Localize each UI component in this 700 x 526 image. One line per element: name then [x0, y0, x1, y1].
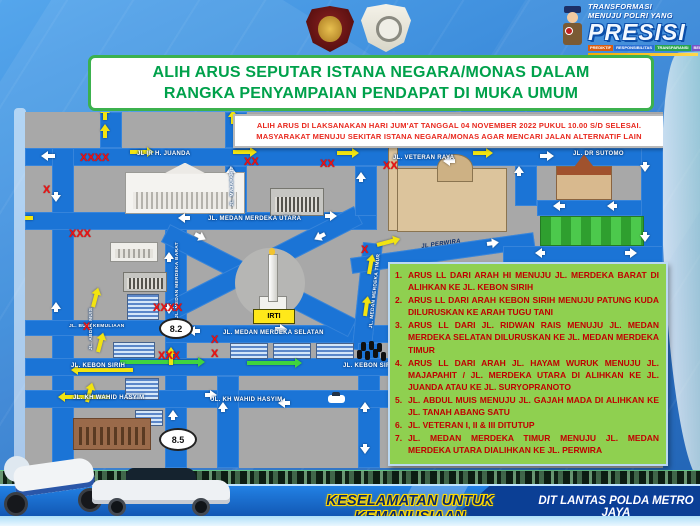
road-closure-mark: XX [244, 156, 259, 168]
road-closure-mark: X [211, 334, 218, 346]
street-label: JL. MEDAN MERDEKA SELATAN [223, 330, 324, 336]
road-closure-mark: X [211, 348, 218, 360]
advisory-item-number: 5. [395, 394, 408, 418]
notice-line2: MASYARAKAT MENUJU SEKITAR ISTANA NEGARA/… [235, 131, 663, 142]
traffic-police-badge-icon [361, 4, 411, 52]
traffic-arrow [50, 302, 62, 312]
protesters-icon [357, 350, 362, 359]
traffic-arrow [607, 200, 617, 212]
advisory-panel: 1.ARUS LL DARI ARAH HI MENUJU JL. MERDEK… [388, 262, 668, 466]
street-label: JL. MEDAN MERDEKA UTARA [208, 216, 301, 222]
street-label: JL. KH WAHID HASYIM [211, 397, 282, 403]
road-closure-mark: XXX [69, 228, 91, 240]
advisory-item: 4.ARUS LL DARI ARAH JL. HAYAM WURUK MENU… [395, 357, 659, 393]
street-label: JL. KEBON SIRIH [71, 363, 125, 369]
traffic-arrow [99, 112, 111, 120]
traffic-arrow [625, 247, 637, 259]
traffic-arrow [325, 210, 337, 222]
road-closure-mark: X [43, 184, 50, 196]
building-church [556, 166, 612, 200]
advisory-item-text: ARUS LL DARI ARAH KEBON SIRIH MENUJU PAT… [408, 294, 659, 318]
advisory-list: 1.ARUS LL DARI ARAH HI MENUJU JL. MERDEK… [395, 269, 659, 456]
advisory-item: 6.JL. VETERAN I, II & III DITUTUP [395, 419, 659, 431]
title-banner: ALIH ARUS SEPUTAR ISTANA NEGARA/MONAS DA… [88, 55, 654, 111]
traffic-arrow [41, 150, 55, 162]
polri-mascot-icon [560, 6, 586, 56]
metro-jaya-police-badge-icon [306, 6, 354, 52]
road-closure-mark: XXXX [80, 152, 109, 164]
traffic-arrow [639, 162, 651, 172]
road-closure-mark: X [361, 244, 368, 256]
traffic-arrow [87, 286, 104, 308]
presisi-branding: TRANSFORMASI MENUJU POLRI YANG PRESISI P… [560, 2, 698, 58]
advisory-item-text: JL. ABDUL MUIS MENUJU JL. GAJAH MADA DI … [408, 394, 659, 418]
street-label: JL. DR SUTOMO [573, 151, 624, 157]
traffic-arrow [535, 247, 545, 259]
advisory-item: 1.ARUS LL DARI ARAH HI MENUJU JL. MERDEK… [395, 269, 659, 293]
traffic-arrow [473, 147, 493, 159]
traffic-arrow [355, 172, 367, 182]
presisi-brand: PRESISI [588, 20, 698, 44]
police-vehicles-image [0, 450, 232, 520]
tagline-chip: PREDIKTIF [588, 45, 613, 51]
notice-box: ALIH ARUS DI LAKSANAKAN HARI JUM'AT TANG… [233, 114, 663, 148]
traffic-arrow [25, 212, 33, 224]
building-field [540, 216, 644, 246]
traffic-arrow [178, 212, 190, 224]
traffic-arrow [359, 402, 371, 412]
advisory-item: 2.ARUS LL DARI ARAH KEBON SIRIH MENUJU P… [395, 294, 659, 318]
building-blue [316, 343, 354, 359]
traffic-arrow [163, 252, 175, 262]
advisory-item: 3.ARUS LL DARI JL. RIDWAN RAIS MENUJU JL… [395, 319, 659, 355]
advisory-item-number: 2. [395, 294, 408, 318]
advisory-item-number: 6. [395, 419, 408, 431]
building-civic [110, 242, 158, 262]
building-mosque [397, 168, 507, 232]
advisory-item-number: 4. [395, 357, 408, 393]
title-line2: RANGKA PENYAMPAIAN PENDAPAT DI MUKA UMUM [91, 83, 651, 104]
advisory-item: 5.JL. ABDUL MUIS MENUJU JL. GAJAH MADA D… [395, 394, 659, 418]
street-label: JL. MAJAPAHIT [230, 166, 235, 206]
street-label: JL IR H. JUANDA [137, 151, 190, 157]
advisory-item-text: JL. VETERAN I, II & III DITUTUP [408, 419, 659, 431]
road-closure-mark: XXXX [153, 302, 182, 314]
building-palace [125, 172, 245, 214]
monas-monument-icon [259, 246, 285, 312]
road-closure-mark: XX [320, 158, 335, 170]
car-icon [328, 395, 345, 403]
notice-line1: ALIH ARUS DI LAKSANAKAN HARI JUM'AT TANG… [235, 120, 663, 131]
traffic-arrow [217, 402, 229, 412]
tagline-chip: BERKEADILAN [692, 45, 700, 51]
traffic-arrow [375, 233, 401, 251]
advisory-item-text: ARUS LL DARI ARAH JL. HAYAM WURUK MENUJU… [408, 357, 659, 393]
tagline-chip: RESPONSIBILITAS [614, 45, 654, 51]
advisory-item-text: ARUS LL DARI JL. RIDWAN RAIS MENUJU JL. … [408, 319, 659, 355]
map-badge: 8.5 [159, 428, 197, 451]
traffic-diversion-infographic: TRANSFORMASI MENUJU POLRI YANG PRESISI P… [0, 0, 700, 526]
tagline-chip: TRANSPARANSI [655, 45, 690, 51]
advisory-item-number: 7. [395, 432, 408, 456]
street-label: JL. KH WAHID HASYIM [73, 395, 144, 401]
street-label: JL. VETERAN RAYA [393, 155, 454, 161]
police-car-icon [92, 468, 230, 516]
road-closure-mark: XXX [158, 350, 180, 362]
traffic-arrow [337, 147, 359, 159]
traffic-arrow [513, 166, 525, 176]
advisory-item-text: ARUS LL DARI ARAH HI MENUJU JL. MERDEKA … [408, 269, 659, 293]
advisory-item-text: JL. MEDAN MERDEKA TIMUR MENUJU JL. MEDAN… [408, 432, 659, 456]
map-badge: IRTI [253, 309, 295, 324]
traffic-arrow [247, 357, 302, 369]
presisi-tagline: PREDIKTIFRESPONSIBILITASTRANSPARANSIBERK… [588, 45, 698, 51]
traffic-arrow [50, 192, 62, 202]
advisory-item: 7.JL. MEDAN MERDEKA TIMUR MENUJU JL. MED… [395, 432, 659, 456]
traffic-arrow [167, 410, 179, 420]
map-badge: 8.2 [159, 318, 193, 339]
building-gov [270, 188, 324, 216]
building-brown [73, 418, 151, 450]
traffic-arrow [553, 200, 565, 212]
presisi-line1: TRANSFORMASI [588, 2, 698, 11]
traffic-arrow [540, 150, 554, 162]
traffic-arrow [359, 444, 371, 454]
traffic-arrow [486, 236, 500, 250]
advisory-item-number: 3. [395, 319, 408, 355]
advisory-item-number: 1. [395, 269, 408, 293]
traffic-arrow [639, 232, 651, 242]
traffic-arrow [99, 124, 111, 138]
title-line1: ALIH ARUS SEPUTAR ISTANA NEGARA/MONAS DA… [91, 62, 651, 83]
street-label: JL. BUDI KEMULIAAN [69, 324, 125, 329]
building-gov [123, 272, 167, 292]
road-closure-mark: XX [383, 160, 398, 172]
road-closure-mark: X [83, 321, 90, 333]
